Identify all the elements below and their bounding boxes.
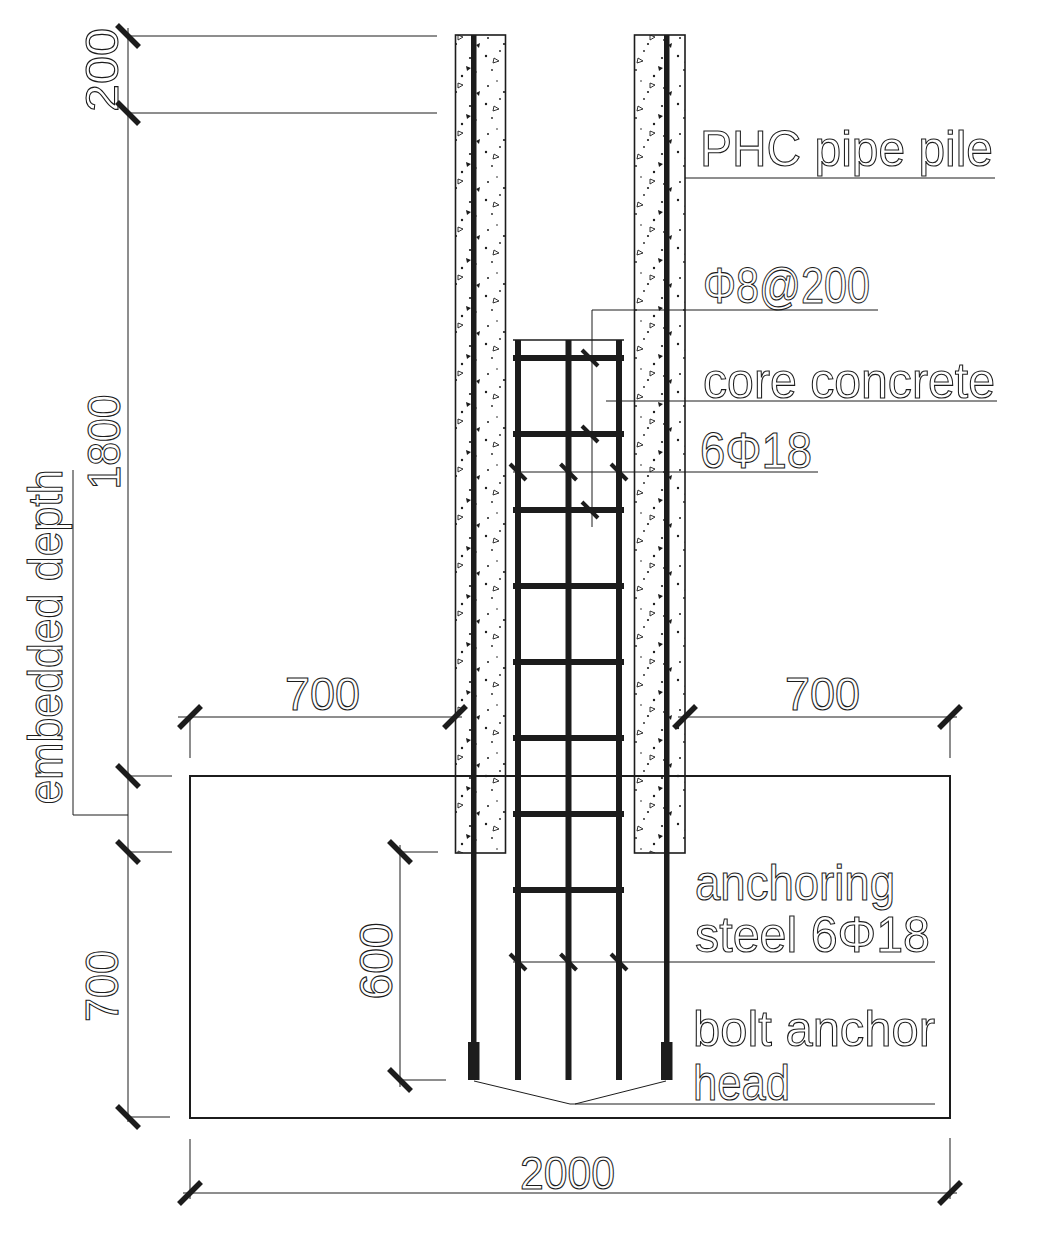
anchor-bar-outer-left	[471, 35, 477, 1042]
pile-wall-right	[635, 35, 686, 853]
cage-bar-left	[515, 340, 521, 1080]
pile-detail-drawing: PHC pipe pile Φ8@200 core concrete 6Φ18 …	[0, 0, 1037, 1241]
cage-bar-middle	[566, 340, 572, 1080]
dim-cap-2000: 2000	[520, 1147, 615, 1199]
pile-wall-left	[456, 35, 506, 853]
cad-canvas: PHC pipe pile Φ8@200 core concrete 6Φ18 …	[0, 0, 1037, 1241]
label-bolt-anchor-line2: head	[693, 1055, 790, 1111]
cage-bar-right	[616, 340, 622, 1080]
dim-left-700: 700	[285, 668, 360, 720]
label-anchoring-steel-line1: anchoring	[695, 855, 895, 911]
anchor-bar-outer-right	[664, 35, 670, 1042]
dim-embed-1800: 1800	[78, 395, 130, 490]
bolt-anchor-head-right	[661, 1042, 673, 1080]
label-phc-pipe-pile: PHC pipe pile	[700, 121, 993, 177]
label-bolt-anchor-line1: bolt anchor	[693, 1001, 935, 1057]
dim-bottom-700: 700	[76, 950, 128, 1022]
label-embedded-depth: embedded depth	[19, 470, 72, 805]
annotation-leaders	[474, 178, 997, 1104]
dim-anchor-600: 600	[350, 923, 402, 1000]
label-cage-bars: 6Φ18	[700, 423, 812, 479]
label-core-concrete: core concrete	[703, 353, 995, 409]
dim-top-200: 200	[76, 28, 128, 112]
bolt-anchor-head-left	[468, 1042, 480, 1080]
dim-right-700: 700	[785, 668, 860, 720]
label-anchoring-steel-line2: steel 6Φ18	[695, 907, 930, 963]
label-stirrups: Φ8@200	[703, 258, 870, 314]
